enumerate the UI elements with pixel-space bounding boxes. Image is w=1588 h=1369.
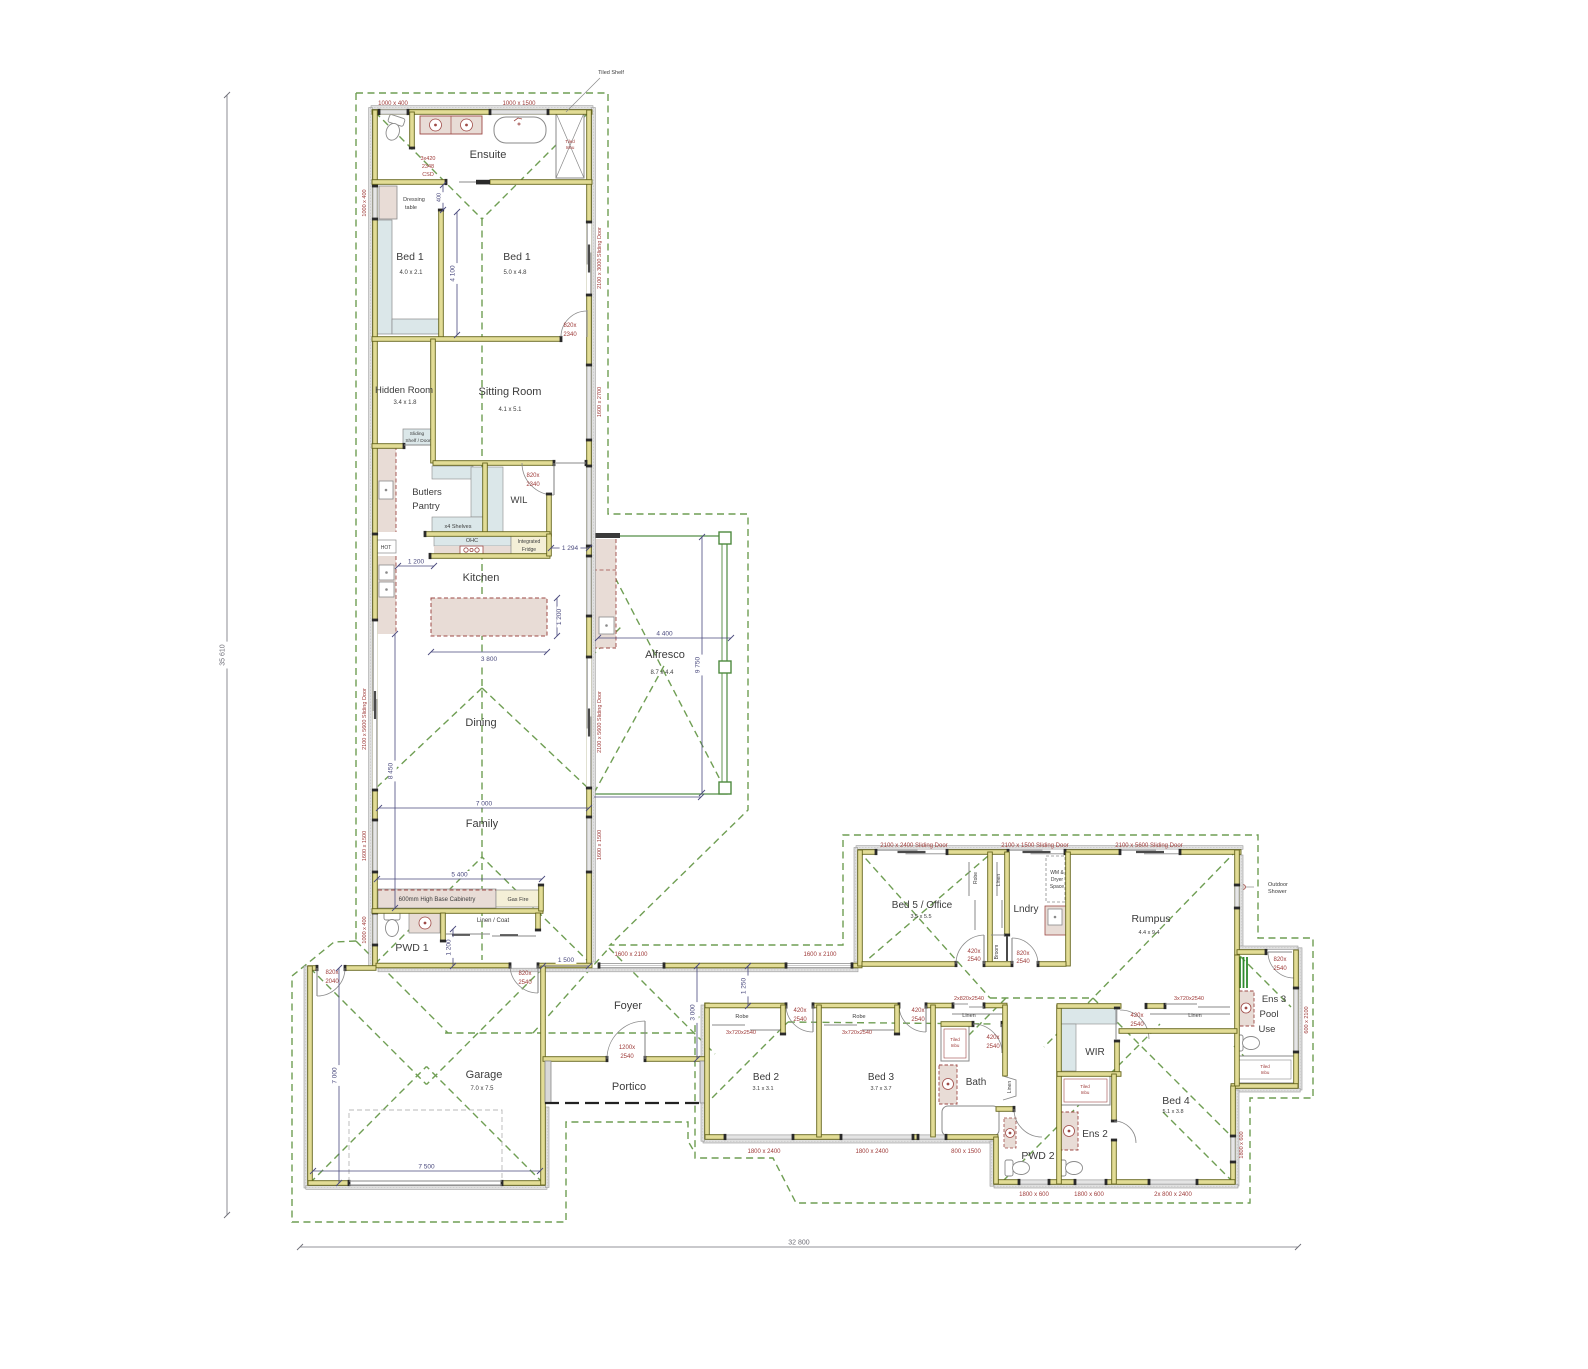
svg-text:2540: 2540 <box>911 1017 925 1023</box>
svg-text:820x: 820x <box>563 323 576 329</box>
svg-text:Bath: Bath <box>966 1077 987 1088</box>
svg-text:table: table <box>405 205 417 211</box>
svg-text:8.7 x 4.4: 8.7 x 4.4 <box>650 670 674 676</box>
svg-text:Garage: Garage <box>466 1069 503 1081</box>
svg-text:820x: 820x <box>526 473 539 479</box>
svg-text:2540: 2540 <box>1130 1022 1144 1028</box>
svg-text:3.7 x 3.7: 3.7 x 3.7 <box>870 1086 891 1092</box>
svg-text:820x: 820x <box>518 971 531 977</box>
svg-text:Bed 4: Bed 4 <box>1162 1095 1190 1107</box>
svg-text:420x: 420x <box>986 1035 999 1041</box>
svg-text:3x720x2540: 3x720x2540 <box>1174 996 1204 1002</box>
svg-text:3x720x2540: 3x720x2540 <box>842 1030 872 1036</box>
svg-text:Tiled: Tiled <box>950 1037 960 1042</box>
svg-text:2540: 2540 <box>793 1017 807 1023</box>
svg-text:1200x: 1200x <box>619 1045 635 1051</box>
svg-text:Sitting Room: Sitting Room <box>479 386 542 398</box>
svg-text:420x: 420x <box>1130 1013 1143 1019</box>
svg-text:Ens 2: Ens 2 <box>1082 1129 1108 1140</box>
svg-text:Rumpus: Rumpus <box>1131 913 1170 925</box>
svg-text:3x720x2540: 3x720x2540 <box>726 1030 756 1036</box>
svg-text:Bed 1: Bed 1 <box>396 251 424 263</box>
svg-text:Fridge: Fridge <box>522 547 536 553</box>
svg-text:1600 x 2100: 1600 x 2100 <box>614 952 648 958</box>
svg-text:Bed 2: Bed 2 <box>753 1072 780 1083</box>
svg-text:1800 x 600: 1800 x 600 <box>1239 1131 1245 1158</box>
svg-text:3.4 x 1.8: 3.4 x 1.8 <box>393 400 417 406</box>
svg-text:Shower: Shower <box>1268 889 1287 895</box>
svg-text:2540: 2540 <box>1016 959 1030 965</box>
svg-text:7 000: 7 000 <box>476 801 493 808</box>
svg-text:8 450: 8 450 <box>388 762 395 779</box>
svg-text:Linen: Linen <box>1007 1081 1013 1093</box>
svg-text:Tiled: Tiled <box>1260 1064 1270 1069</box>
svg-text:Hidden Room: Hidden Room <box>375 385 433 396</box>
svg-text:1 200: 1 200 <box>556 608 563 625</box>
svg-text:PWD 1: PWD 1 <box>395 942 428 954</box>
svg-text:7 500: 7 500 <box>418 1164 435 1171</box>
svg-text:2348: 2348 <box>422 164 434 170</box>
svg-text:Robe: Robe <box>735 1014 748 1020</box>
svg-text:CSD: CSD <box>422 172 434 178</box>
svg-text:3 800: 3 800 <box>481 656 498 663</box>
svg-text:Pantry: Pantry <box>412 501 440 512</box>
svg-text:Ens 3: Ens 3 <box>1262 994 1286 1005</box>
svg-text:4.4 x 9.4: 4.4 x 9.4 <box>1138 930 1159 936</box>
svg-text:Bed 3: Bed 3 <box>868 1072 895 1083</box>
svg-text:420x: 420x <box>911 1008 924 1014</box>
svg-text:3 000: 3 000 <box>690 1004 697 1021</box>
svg-text:Foyer: Foyer <box>614 1000 642 1012</box>
svg-text:820x: 820x <box>1273 957 1286 963</box>
svg-text:Family: Family <box>466 818 499 830</box>
svg-text:Bed 5 / Office: Bed 5 / Office <box>892 900 953 911</box>
svg-text:1000 x 1500: 1000 x 1500 <box>502 101 536 107</box>
svg-text:4.0 x 2.1: 4.0 x 2.1 <box>399 270 423 276</box>
svg-text:Portico: Portico <box>612 1081 646 1093</box>
svg-text:Inbu: Inbu <box>1081 1090 1090 1095</box>
svg-text:2100 x 5600 Sliding Door: 2100 x 5600 Sliding Door <box>597 691 603 753</box>
svg-text:Robe: Robe <box>973 872 979 884</box>
svg-text:2040: 2040 <box>325 979 339 985</box>
svg-text:Shelf / Door: Shelf / Door <box>405 438 431 444</box>
svg-text:Use: Use <box>1259 1024 1276 1035</box>
svg-text:3.1 x 3.1: 3.1 x 3.1 <box>752 1086 773 1092</box>
svg-text:2x 800 x 2400: 2x 800 x 2400 <box>1154 1192 1192 1198</box>
svg-text:WM &: WM & <box>1050 870 1064 876</box>
svg-text:Robe: Robe <box>852 1014 865 1020</box>
svg-text:420x: 420x <box>793 1008 806 1014</box>
svg-text:1600 x 1500: 1600 x 1500 <box>362 831 368 861</box>
svg-text:Broom: Broom <box>994 945 1000 960</box>
svg-text:1000 x 400: 1000 x 400 <box>362 189 368 216</box>
svg-text:Gas Fire: Gas Fire <box>507 897 528 903</box>
svg-text:WIL: WIL <box>511 495 528 506</box>
svg-text:1 200: 1 200 <box>408 559 425 566</box>
svg-text:1 200: 1 200 <box>446 939 453 956</box>
svg-text:2540: 2540 <box>967 957 981 963</box>
svg-text:9 750: 9 750 <box>695 656 702 673</box>
svg-text:2100 x 2400 Sliding Door: 2100 x 2400 Sliding Door <box>880 843 947 849</box>
svg-text:1800 x 600: 1800 x 600 <box>1019 1192 1049 1198</box>
svg-text:Dressing: Dressing <box>403 197 425 203</box>
svg-text:1 500: 1 500 <box>558 957 575 964</box>
svg-text:2100 x 5600 Sliding Door: 2100 x 5600 Sliding Door <box>362 688 368 750</box>
svg-text:Linen: Linen <box>962 1013 975 1019</box>
svg-text:HOT: HOT <box>381 545 392 551</box>
svg-text:Space: Space <box>1050 884 1064 890</box>
svg-text:1600 x 1500: 1600 x 1500 <box>597 830 603 860</box>
svg-text:420x: 420x <box>967 949 980 955</box>
svg-text:Inbu: Inbu <box>566 145 575 150</box>
svg-text:1 294: 1 294 <box>562 545 579 552</box>
svg-text:3x420: 3x420 <box>421 156 436 162</box>
svg-text:2340: 2340 <box>526 482 540 488</box>
svg-text:32 800: 32 800 <box>788 1240 810 1247</box>
svg-text:2340: 2340 <box>563 332 577 338</box>
svg-text:1800 x 2400: 1800 x 2400 <box>855 1149 889 1155</box>
svg-text:Dryer: Dryer <box>1051 877 1064 883</box>
svg-text:1000 x 400: 1000 x 400 <box>362 916 368 943</box>
svg-text:1000 x 400: 1000 x 400 <box>378 101 408 107</box>
svg-text:Linen: Linen <box>1188 1013 1201 1019</box>
svg-text:x4 Shelves: x4 Shelves <box>445 524 472 530</box>
svg-text:Ensuite: Ensuite <box>470 149 507 161</box>
svg-text:5.1 x 3.8: 5.1 x 3.8 <box>1162 1109 1183 1115</box>
svg-text:Sliding: Sliding <box>410 431 425 437</box>
svg-text:600mm High Base Cabinetry: 600mm High Base Cabinetry <box>399 897 476 903</box>
svg-text:1 250: 1 250 <box>741 977 748 994</box>
svg-text:2100 x 5600 Sliding Door: 2100 x 5600 Sliding Door <box>1115 843 1182 849</box>
svg-text:Bed 1: Bed 1 <box>503 251 531 263</box>
svg-text:3.5 x 5.5: 3.5 x 5.5 <box>910 914 931 920</box>
svg-text:2100 x 3000 Sliding Door: 2100 x 3000 Sliding Door <box>597 227 603 289</box>
svg-text:Lndry: Lndry <box>1013 904 1038 915</box>
svg-text:Kitchen: Kitchen <box>463 572 500 584</box>
svg-text:Linen / Coat: Linen / Coat <box>477 918 510 924</box>
svg-text:Tiled Shelf: Tiled Shelf <box>598 70 624 76</box>
svg-text:2540: 2540 <box>620 1054 634 1060</box>
svg-text:2540: 2540 <box>986 1044 1000 1050</box>
svg-text:Outdoor: Outdoor <box>1268 882 1288 888</box>
svg-text:35 610: 35 610 <box>220 644 227 666</box>
svg-text:PWD 2: PWD 2 <box>1021 1150 1054 1162</box>
svg-text:Alfresco: Alfresco <box>645 649 685 661</box>
svg-text:Inbu: Inbu <box>1261 1070 1270 1075</box>
svg-text:Tiled: Tiled <box>1080 1084 1090 1089</box>
svg-text:7.0 x 7.5: 7.0 x 7.5 <box>470 1086 494 1092</box>
svg-text:2x820x2540: 2x820x2540 <box>954 996 984 1002</box>
svg-text:1800 x 2400: 1800 x 2400 <box>747 1149 781 1155</box>
svg-text:400: 400 <box>437 193 443 202</box>
svg-text:Butlers: Butlers <box>412 487 442 498</box>
svg-text:800 x 1500: 800 x 1500 <box>951 1149 981 1155</box>
svg-text:2540: 2540 <box>1273 966 1287 972</box>
svg-text:600 x 2100: 600 x 2100 <box>1304 1006 1310 1033</box>
svg-text:4.1 x 5.1: 4.1 x 5.1 <box>498 407 522 413</box>
svg-text:5.0 x 4.8: 5.0 x 4.8 <box>503 270 527 276</box>
svg-text:7 000: 7 000 <box>332 1067 339 1084</box>
svg-text:820x: 820x <box>1016 951 1029 957</box>
svg-text:4 400: 4 400 <box>656 631 673 638</box>
svg-text:Dining: Dining <box>465 717 496 729</box>
svg-text:1800 x 600: 1800 x 600 <box>1074 1192 1104 1198</box>
svg-text:Inbu: Inbu <box>951 1043 960 1048</box>
svg-text:2540: 2540 <box>518 980 532 986</box>
svg-text:Pool: Pool <box>1259 1009 1278 1020</box>
svg-text:Linen: Linen <box>996 874 1002 886</box>
svg-text:WIR: WIR <box>1085 1047 1104 1058</box>
svg-text:1600 x 2100: 1600 x 2100 <box>803 952 837 958</box>
svg-text:2100 x 1500 Sliding Door: 2100 x 1500 Sliding Door <box>1001 843 1068 849</box>
svg-text:Tiled: Tiled <box>565 139 575 144</box>
svg-text:4 100: 4 100 <box>450 265 457 282</box>
svg-text:Integrated: Integrated <box>518 539 541 545</box>
svg-text:5 400: 5 400 <box>451 872 468 879</box>
svg-text:1600 x 2700: 1600 x 2700 <box>597 387 603 417</box>
svg-text:OHC: OHC <box>466 538 478 544</box>
